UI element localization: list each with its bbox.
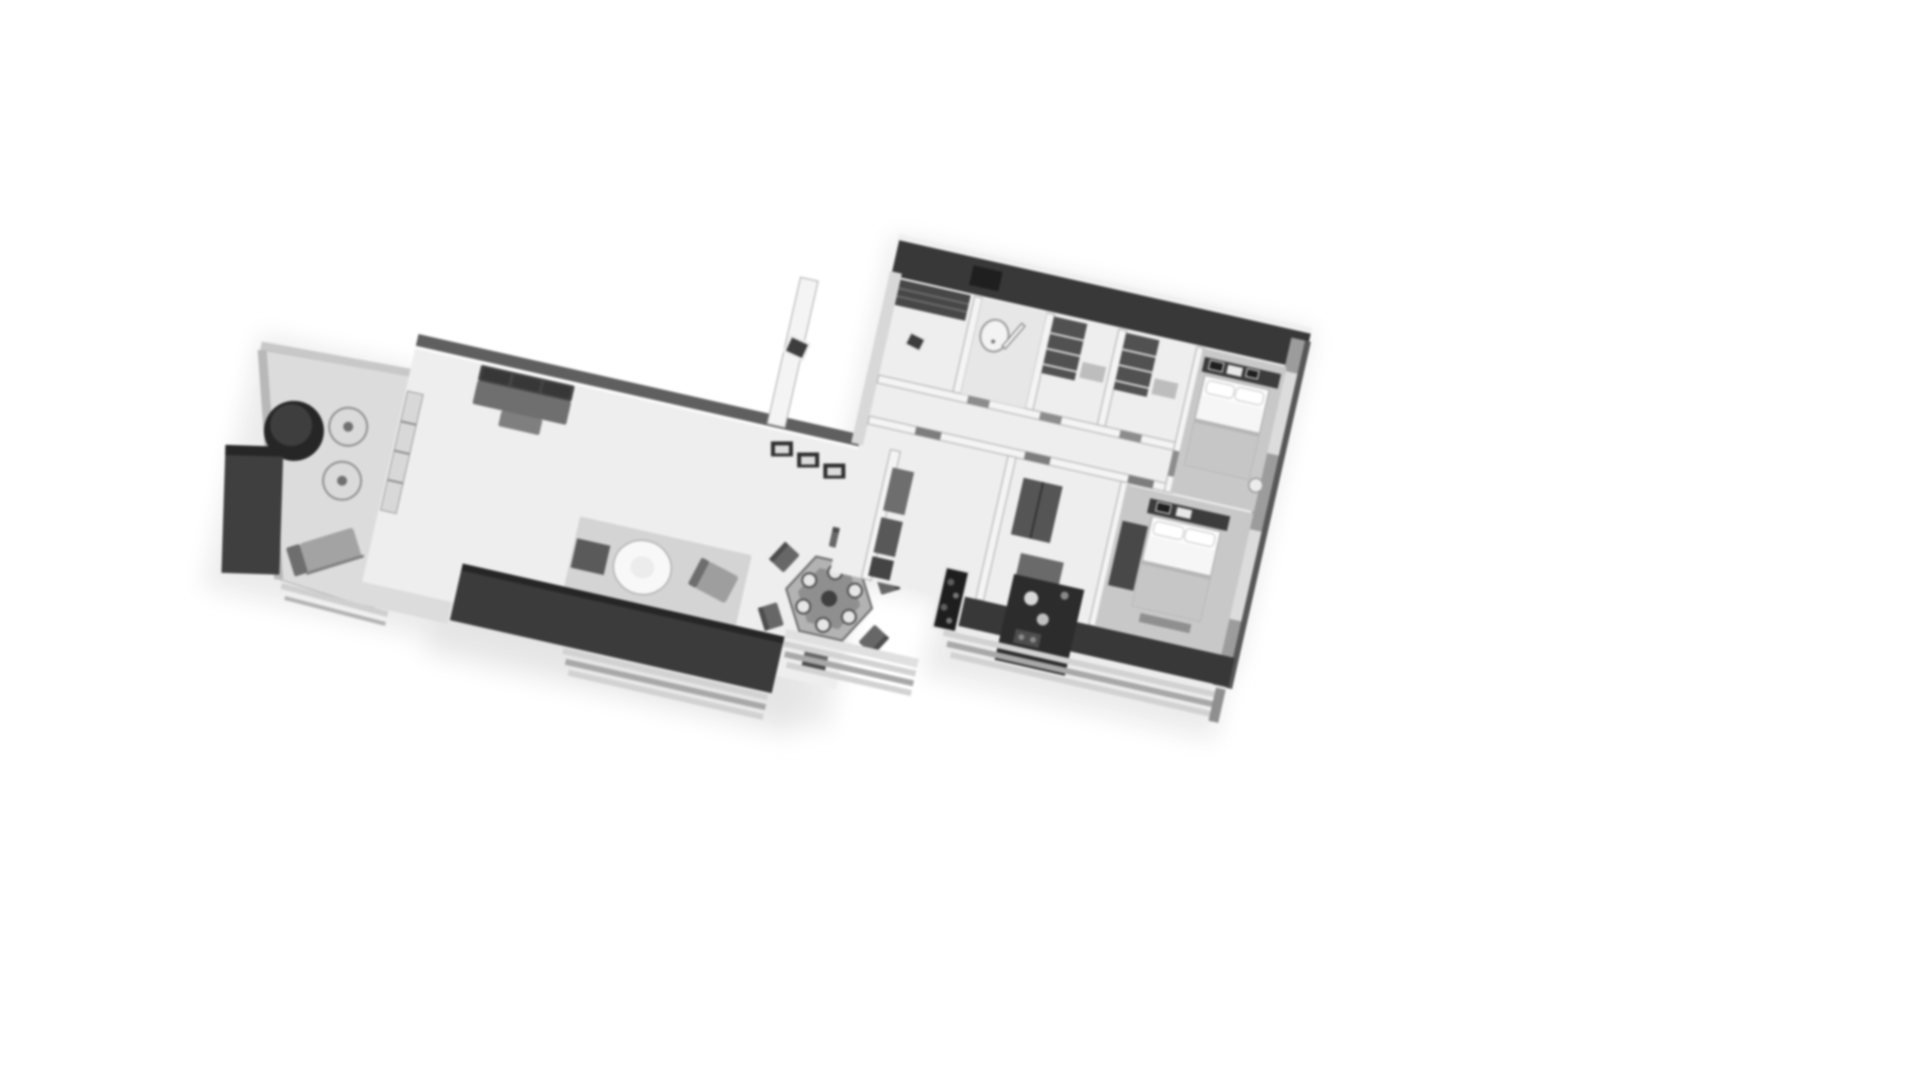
floor-plan-image [0,0,1920,1080]
frame-2-canvas [801,456,815,464]
floor-plan-svg [0,0,1920,1080]
wall-frame-2 [797,452,819,467]
planter-box [221,445,283,575]
planter-body [221,445,283,575]
wall-frame-3 [823,464,845,479]
wall-frame-1 [771,441,793,456]
frame-1-canvas [775,445,789,453]
frame-3-canvas [827,468,841,476]
planter-rim [225,445,283,457]
